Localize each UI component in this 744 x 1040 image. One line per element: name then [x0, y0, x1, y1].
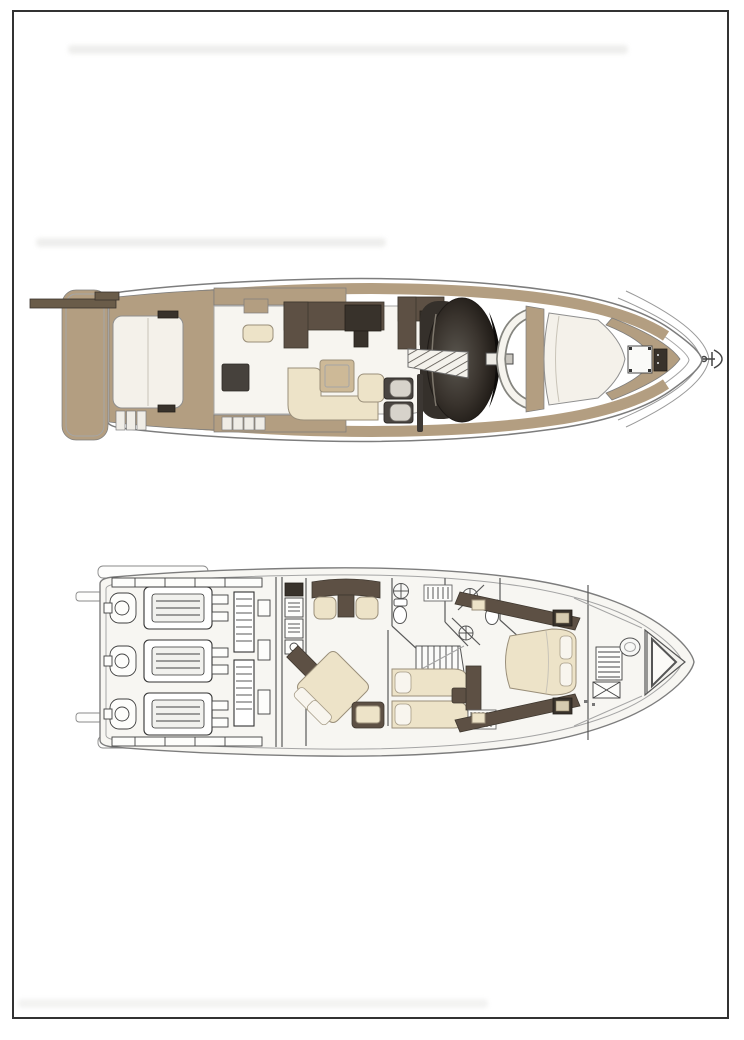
master-sofa-cushion: [314, 597, 336, 619]
bow-cross-walkway: [526, 306, 544, 412]
twin-bed-pillow: [395, 704, 411, 725]
vip-bed-pillow: [560, 636, 572, 659]
twin-bed-pillow: [395, 672, 411, 693]
aft-sunpad: [113, 311, 183, 412]
deck-plans-drawing: [0, 0, 744, 1040]
passerelle-base: [95, 292, 119, 300]
upper-deck-plan: [30, 278, 722, 441]
engine-2: [104, 640, 228, 682]
twin-headboard-unit: [466, 666, 481, 710]
flybridge-bench: [243, 325, 273, 342]
anchor-windlass: [628, 346, 667, 373]
flybridge-aft-table: [222, 364, 249, 391]
wardrobe-hatch: [472, 713, 485, 723]
toilet-icon: [394, 599, 408, 624]
aft-steps: [116, 411, 146, 430]
master-sofa-cushion: [356, 597, 378, 619]
master-bench-cushion: [356, 706, 380, 723]
sink-icon: [394, 584, 409, 599]
wardrobe-hatch: [472, 600, 485, 610]
flybridge-sofa-back: [358, 374, 384, 402]
vip-bed-pillow: [560, 663, 572, 686]
side-hatch-inner: [556, 701, 569, 711]
lower-deck-stairs: [416, 646, 464, 672]
helm-seats: [384, 374, 423, 432]
brochure-page: [0, 0, 744, 1040]
swim-platform: [62, 290, 108, 440]
twin-nightstand: [452, 688, 466, 703]
bow-sink-bowl: [620, 638, 640, 656]
master-sofa-armrest: [338, 595, 354, 617]
windshield-mullion: [417, 374, 423, 432]
flybridge-storage-box: [244, 299, 268, 313]
side-hatch-inner: [556, 613, 569, 623]
engine-3: [104, 693, 228, 735]
lower-deck-plan: [76, 566, 694, 756]
engine-1: [104, 587, 228, 629]
